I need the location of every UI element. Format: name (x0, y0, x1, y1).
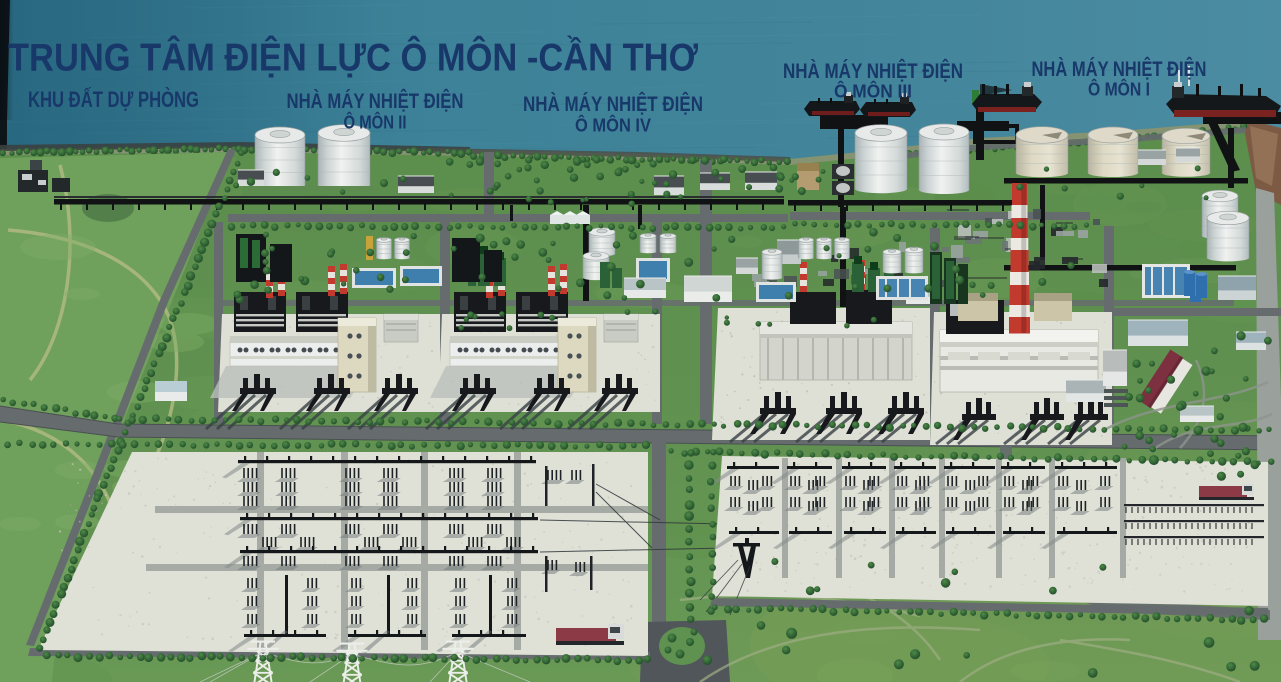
svg-text:NHÀ MÁY NHIỆT ĐIỆN: NHÀ MÁY NHIỆT ĐIỆN (783, 58, 963, 83)
svg-text:Ô MÔN I: Ô MÔN I (1088, 79, 1150, 100)
svg-text:NHÀ MÁY NHIỆT ĐIỆN: NHÀ MÁY NHIỆT ĐIỆN (1032, 56, 1207, 81)
svg-text:KHU ĐẤT DỰ PHÒNG: KHU ĐẤT DỰ PHÒNG (28, 87, 199, 112)
svg-text:NHÀ MÁY NHIỆT ĐIỆN: NHÀ MÁY NHIỆT ĐIỆN (287, 88, 464, 113)
svg-text:NHÀ MÁY NHIỆT ĐIỆN: NHÀ MÁY NHIỆT ĐIỆN (523, 91, 703, 116)
svg-text:Ô MÔN III: Ô MÔN III (834, 81, 912, 102)
svg-text:Ô MÔN II: Ô MÔN II (344, 112, 407, 133)
svg-text:Ô MÔN IV: Ô MÔN IV (575, 115, 651, 136)
svg-text:TRUNG TÂM ĐIỆN LỰC Ô MÔN -CẦN: TRUNG TÂM ĐIỆN LỰC Ô MÔN -CẦN THƠ (8, 35, 699, 80)
